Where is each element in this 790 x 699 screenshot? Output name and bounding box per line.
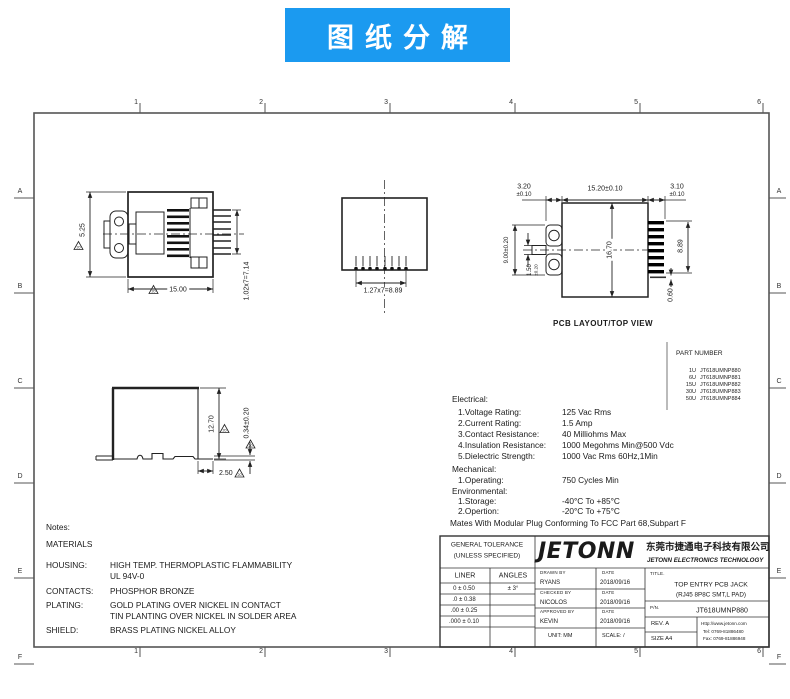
dim-side-standoff: 0.34±0.20: [243, 407, 250, 438]
zone-col-top: 5: [624, 99, 638, 106]
zone-row-left: D: [15, 473, 25, 480]
dim-pcb-left-top-tol: ±0.10: [517, 192, 532, 198]
part-number: JT618UMNP880: [700, 369, 741, 375]
rev-field: REV. A: [651, 621, 669, 627]
spec-label: 1.Operating:: [458, 476, 504, 485]
spec-value: 1.5 Amp: [562, 419, 592, 428]
part-qty: 15U: [682, 383, 696, 389]
zone-col-bottom: 5: [624, 648, 638, 655]
company-fax: Fax: 0769-81886948: [703, 637, 745, 642]
dim-pcb-right-top: 3.10: [670, 183, 684, 190]
note-value: UL 94V-0: [110, 572, 144, 581]
size-field: SIZE A4: [651, 636, 672, 642]
note-value: BRASS PLATING NICKEL ALLOY: [110, 626, 236, 635]
note-value: PHOSPHOR BRONZE: [110, 587, 194, 596]
tolerance-header: GENERAL TOLERANCE: [451, 543, 523, 550]
zone-col-bottom: 3: [374, 648, 388, 655]
tolerance-angle: ± 3°: [508, 586, 519, 592]
drawn-by: RYANS: [540, 580, 560, 586]
note-value: GOLD PLATING OVER NICKEL IN CONTACT: [110, 601, 281, 610]
zone-row-left: C: [15, 378, 25, 385]
checked-date: 2018/09/16: [600, 600, 630, 606]
note-value: HIGH TEMP. THERMOPLASTIC FLAMMABILITY: [110, 561, 292, 570]
notes-subtitle: MATERIALS: [46, 540, 92, 549]
tolerance-header2: (UNLESS SPECIFIED): [454, 554, 520, 561]
svg-text:20: 20: [77, 246, 81, 250]
approved-by: KEVIN: [540, 619, 558, 625]
dim-pcb-left-top: 3.20: [517, 183, 531, 190]
zone-row-right: D: [774, 473, 784, 480]
zone-row-right: F: [774, 654, 784, 661]
part-qty: 6U: [682, 376, 696, 382]
drawing-title: TOP ENTRY PCB JACK: [674, 581, 748, 588]
zone-col-top: 2: [249, 99, 263, 106]
zone-row-right: B: [774, 283, 784, 290]
zone-row-right: A: [774, 188, 784, 195]
dim-pcb-body: 16.70: [606, 239, 613, 261]
spec-value: 1000 Megohms Min@500 Vdc: [562, 441, 674, 450]
zone-row-left: A: [15, 188, 25, 195]
zone-col-top: 6: [747, 99, 761, 106]
spec-label: 4.Insulation Resistance:: [458, 441, 546, 450]
tolerance-row: 0 ± 0.50: [453, 586, 475, 592]
spec-value: -20°C To +75°C: [562, 507, 620, 516]
date-caption: DATE: [602, 571, 614, 576]
dim-pcb-pad-span: 9.00±0.20: [504, 237, 510, 264]
part-qty: 1U: [682, 369, 696, 375]
tolerance-col-angles: ANGLES: [499, 572, 527, 579]
svg-text:20: 20: [238, 473, 242, 477]
spec-footnote: Mates With Modular Plug Conforming To FC…: [450, 519, 686, 528]
part-number: JT618UMNP882: [700, 383, 741, 389]
tolerance-row: .000 ± 0.10: [449, 619, 479, 625]
spec-value: 1000 Vac Rms 60Hz,1Min: [562, 452, 658, 461]
spec-value: 40 Milliohms Max: [562, 430, 626, 439]
drawing-sheet: 图纸分解: [0, 0, 790, 699]
spec-section-electrical: Electrical:: [452, 395, 488, 404]
dim-pcb-right-top-tol: ±0.10: [670, 192, 685, 198]
dim-pcb-pin-width: 0.60: [667, 288, 674, 302]
spec-label: 2.Current Rating:: [458, 419, 521, 428]
note-value: TIN PLANTING OVER NICKEL IN SOLDER AREA: [110, 612, 296, 621]
dim-pcb-mid-top: 15.20±0.10: [588, 185, 623, 192]
part-qty: 30U: [682, 390, 696, 396]
zone-col-bottom: 6: [747, 648, 761, 655]
company-logo: JETONN: [538, 540, 635, 563]
zone-row-left: F: [15, 654, 25, 661]
pn-caption: P/N.: [650, 606, 660, 611]
spec-value: 125 Vac Rms: [562, 408, 611, 417]
title-caption: TITLE.: [650, 572, 665, 577]
dim-side-height: 12.70: [208, 415, 215, 433]
spec-section-mechanical: Mechanical:: [452, 465, 496, 474]
spec-label: 3.Contact Resistance:: [458, 430, 539, 439]
spec-value: 750 Cycles Min: [562, 476, 619, 485]
approved-date: 2018/09/16: [600, 619, 630, 625]
svg-text:20: 20: [249, 444, 253, 448]
svg-text:20: 20: [223, 429, 227, 433]
part-number: JT618UMNP881: [700, 376, 741, 382]
notes-title: Notes:: [46, 523, 70, 532]
company-tel: Tel: 0769-81886480: [703, 630, 744, 635]
spec-label: 1.Voltage Rating:: [458, 408, 521, 417]
zone-col-top: 3: [374, 99, 388, 106]
dim-front-height: 5.25: [79, 223, 86, 237]
part-number-value: JT618UMNP880: [696, 607, 748, 614]
part-number: JT618UMNP883: [700, 390, 741, 396]
note-label: HOUSING:: [46, 561, 87, 570]
company-name-en: JETONN ELECTRONICS TECHNOLOGY: [647, 558, 763, 565]
checked-by: NICOLOS: [540, 600, 567, 606]
dim-side-foot: 2.50: [219, 470, 233, 477]
side-view: [96, 388, 255, 477]
pcb-layout-label: PCB LAYOUT/TOP VIEW: [553, 320, 653, 328]
date-caption: DATE: [602, 610, 614, 615]
zone-col-top: 4: [499, 99, 513, 106]
zone-col-bottom: 2: [249, 648, 263, 655]
zone-row-right: E: [774, 568, 784, 575]
approved-by-caption: APPROVED BY: [540, 610, 574, 615]
drawn-by-caption: DRAWN BY: [540, 571, 566, 576]
dim-pcb-pin-span: 8.89: [677, 239, 684, 253]
dim-pcb-pad-width-tol: ±0.20: [535, 264, 540, 275]
zone-row-right: C: [774, 378, 784, 385]
tolerance-row: .00 ± 0.25: [451, 608, 478, 614]
spec-section-environmental: Environmental:: [452, 487, 507, 496]
note-label: PLATING:: [46, 601, 83, 610]
spec-label: 2.Opertion:: [458, 507, 499, 516]
spec-label: 5.Dielectric Strength:: [458, 452, 535, 461]
front-view: [74, 192, 244, 294]
date-caption: DATE: [602, 591, 614, 596]
tolerance-col-liner: LINER: [455, 572, 476, 579]
dim-front-width: 15.00: [167, 286, 189, 293]
drawn-date: 2018/09/16: [600, 580, 630, 586]
pcb-layout-view: [512, 196, 692, 297]
part-table-title: PART NUMBER: [676, 351, 723, 358]
zone-row-left: B: [15, 283, 25, 290]
revision-triangle-icon: 20 20 20 20 20: [77, 246, 253, 478]
unit-field: UNIT: MM: [548, 634, 572, 640]
company-name-cn: 东莞市捷通电子科技有限公司: [646, 543, 770, 553]
spec-value: -40°C To +85°C: [562, 497, 620, 506]
dim-front-pin-pitch: 1.02x7=7.14: [243, 262, 250, 301]
scale-field: SCALE: /: [602, 634, 625, 640]
note-label: SHIELD:: [46, 626, 78, 635]
company-web: Http://www.jetonn.com: [701, 622, 747, 627]
drawing-subtitle: (RJ45 8P8C SMT,L PAD): [676, 593, 746, 600]
zone-col-bottom: 4: [499, 648, 513, 655]
note-label: CONTACTS:: [46, 587, 93, 596]
checked-by-caption: CHECKED BY: [540, 591, 571, 596]
svg-text:20: 20: [152, 290, 156, 294]
zone-row-left: E: [15, 568, 25, 575]
spec-label: 1.Storage:: [458, 497, 496, 506]
dim-bottom-pin-pitch: 1.27x7=8.89: [362, 287, 405, 294]
part-qty: 50U: [682, 397, 696, 403]
part-number: JT618UMNP884: [700, 397, 741, 403]
dim-pcb-pad-width: 1.50: [527, 264, 533, 276]
zone-col-bottom: 1: [124, 648, 138, 655]
zone-col-top: 1: [124, 99, 138, 106]
tolerance-row: .0 ± 0.38: [452, 597, 475, 603]
